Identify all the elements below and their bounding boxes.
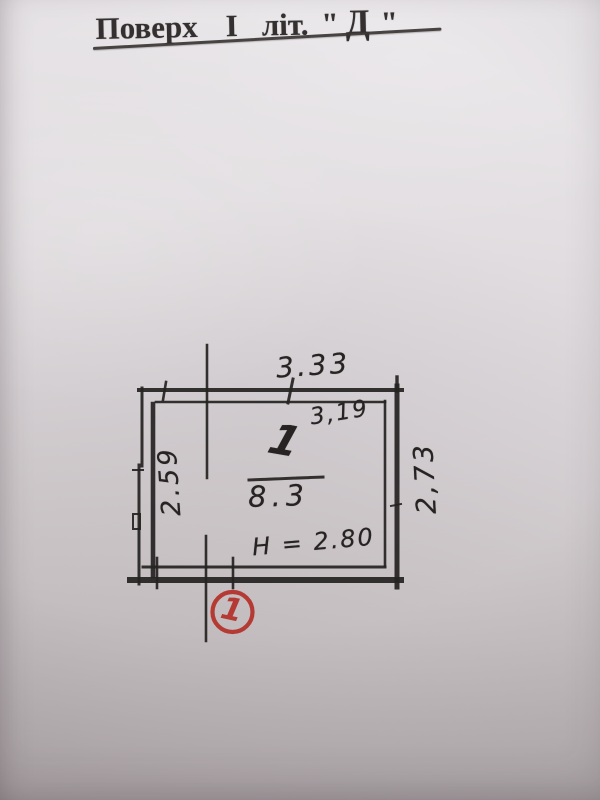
- scanned-floor-plan-page: Поверх І літ. " Д ": [0, 0, 600, 800]
- dimension-right: 2,73: [410, 432, 445, 523]
- room-area: 8.3: [248, 481, 310, 512]
- tick-top-left: [163, 382, 166, 400]
- dimension-top-outer: 3.33: [275, 349, 351, 382]
- dimension-left: 2.59: [154, 435, 190, 527]
- floor-plan-drawing: [0, 0, 600, 800]
